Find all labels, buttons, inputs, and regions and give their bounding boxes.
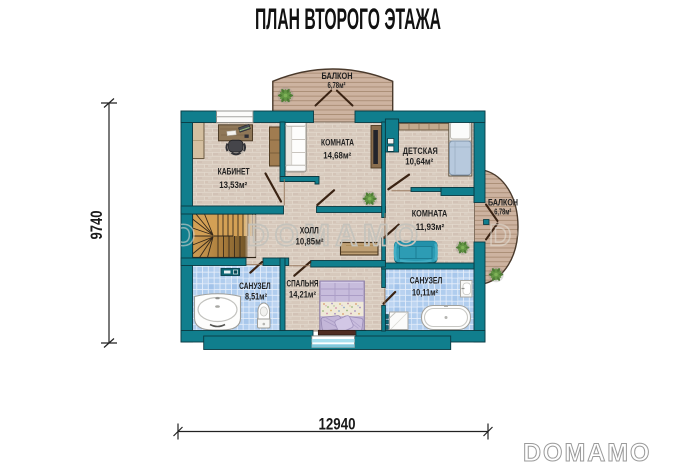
- svg-text:14,68м²: 14,68м²: [323, 150, 351, 160]
- svg-text:10,64м²: 10,64м²: [405, 157, 433, 167]
- svg-text:СПАЛЬНЯ: СПАЛЬНЯ: [287, 279, 319, 289]
- svg-text:14,21м²: 14,21м²: [289, 290, 316, 300]
- svg-text:КОМНАТА: КОМНАТА: [321, 138, 354, 148]
- svg-text:6,78м²: 6,78м²: [328, 80, 346, 90]
- svg-text:КАБИНЕТ: КАБИНЕТ: [218, 167, 250, 177]
- svg-text:DOMAMO: DOMAMO: [247, 218, 423, 253]
- svg-text:ПЛАН ВТОРОГО ЭТАЖА: ПЛАН ВТОРОГО ЭТАЖА: [255, 3, 441, 36]
- svg-text:САНУЗЕЛ: САНУЗЕЛ: [410, 276, 443, 286]
- svg-text:6,78м²: 6,78м²: [494, 207, 511, 217]
- svg-text:DOMAMO: DOMAMO: [523, 439, 655, 467]
- svg-text:КОМНАТА: КОМНАТА: [412, 209, 448, 219]
- svg-text:10,85м²: 10,85м²: [296, 237, 324, 247]
- svg-text:8,51м²: 8,51м²: [245, 291, 267, 301]
- svg-text:10,11м²: 10,11м²: [412, 287, 438, 297]
- svg-text:САНУЗЕЛ: САНУЗЕЛ: [239, 281, 271, 291]
- svg-text:ХОЛЛ: ХОЛЛ: [300, 226, 319, 236]
- svg-text:9740: 9740: [87, 211, 106, 240]
- svg-text:13,53м²: 13,53м²: [219, 180, 247, 190]
- svg-text:12940: 12940: [319, 415, 356, 434]
- svg-text:11,93м²: 11,93м²: [416, 222, 445, 232]
- svg-text:ДЕТСКАЯ: ДЕТСКАЯ: [403, 146, 438, 156]
